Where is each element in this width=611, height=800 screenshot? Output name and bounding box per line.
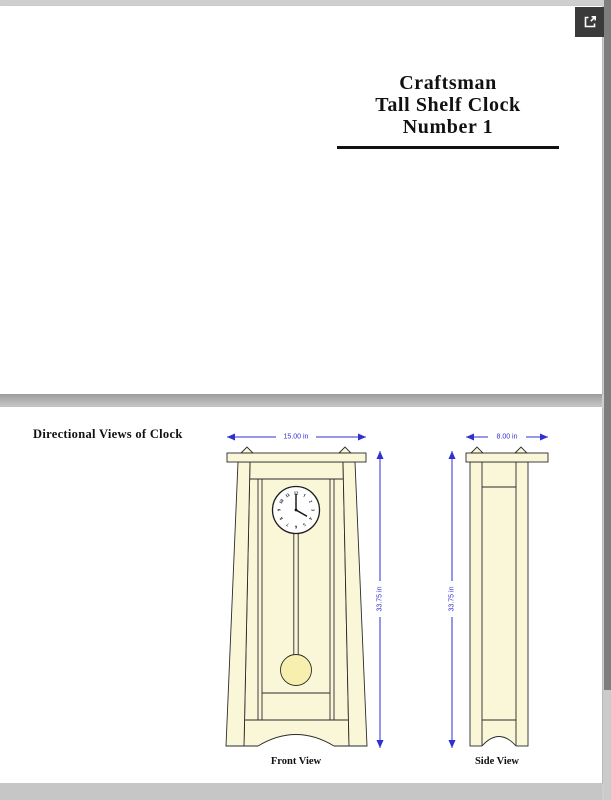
side-width-dimension-label: 8.00 in — [496, 434, 517, 441]
document-title-line-1: Craftsman — [337, 72, 559, 94]
scrollbar-thumb[interactable] — [604, 0, 611, 690]
scrollbar-track[interactable] — [604, 0, 611, 800]
title-block: Craftsman Tall Shelf Clock Number 1 — [337, 72, 559, 149]
front-height-dimension-label: 33.75 in — [377, 586, 384, 611]
front-right-peg — [339, 447, 351, 453]
front-view: 15.00 in 33.75 in — [226, 432, 386, 767]
pdf-viewer: Craftsman Tall Shelf Clock Number 1 Dire… — [0, 0, 611, 800]
clock-center-pin — [295, 509, 298, 512]
pendulum-bob — [281, 655, 312, 686]
side-height-dimension-label: 33.75 in — [449, 586, 456, 611]
side-body — [470, 462, 528, 746]
front-left-peg — [241, 447, 253, 453]
open-external-button[interactable] — [575, 7, 604, 37]
clock-face: 1 2 3 4 5 6 7 8 9 10 11 12 — [273, 487, 320, 534]
canvas-bottom-area — [0, 783, 602, 800]
directional-views-drawing: 15.00 in 33.75 in — [0, 407, 602, 783]
side-view-label: Side View — [475, 756, 519, 767]
open-in-new-icon — [582, 14, 598, 30]
front-width-dimension-label: 15.00 in — [284, 434, 309, 441]
side-top-board — [466, 453, 548, 462]
document-page-2: Directional Views of Clock 15.00 in 33.7… — [0, 407, 602, 783]
document-title-line-3: Number 1 — [337, 116, 559, 138]
document-title-line-2: Tall Shelf Clock — [337, 94, 559, 116]
side-view: 8.00 in 33.75 in Side View — [446, 432, 548, 767]
front-view-label: Front View — [271, 756, 322, 767]
side-back-peg — [515, 447, 527, 453]
document-page-1: Craftsman Tall Shelf Clock Number 1 — [0, 6, 602, 394]
side-front-peg — [471, 447, 483, 453]
page-separator — [0, 394, 602, 407]
title-underline — [337, 146, 559, 149]
front-top-board — [227, 453, 366, 462]
